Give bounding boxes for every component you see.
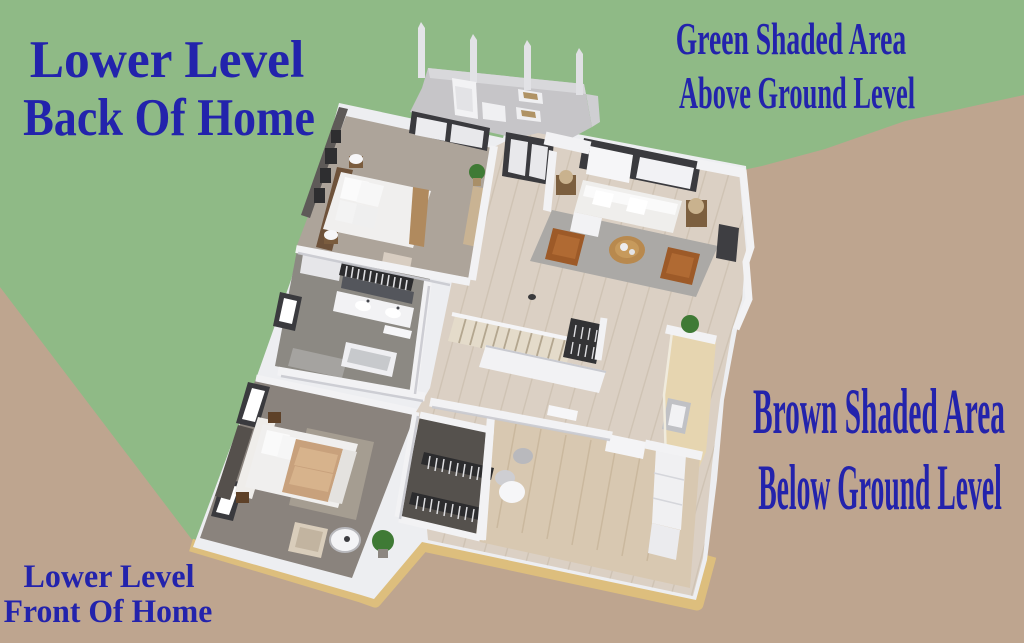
svg-text:Back Of Home: Back Of Home <box>23 88 315 147</box>
svg-text:Green Shaded Area: Green Shaded Area <box>676 14 906 65</box>
svg-text:Brown Shaded Area: Brown Shaded Area <box>753 375 1005 447</box>
svg-text:Front Of Home: Front Of Home <box>4 592 213 629</box>
svg-text:Above Ground Level: Above Ground Level <box>679 69 915 119</box>
svg-text:Lower Level: Lower Level <box>24 559 195 596</box>
svg-text:Below Ground Level: Below Ground Level <box>758 450 1002 523</box>
svg-text:Lower Level: Lower Level <box>30 30 305 89</box>
